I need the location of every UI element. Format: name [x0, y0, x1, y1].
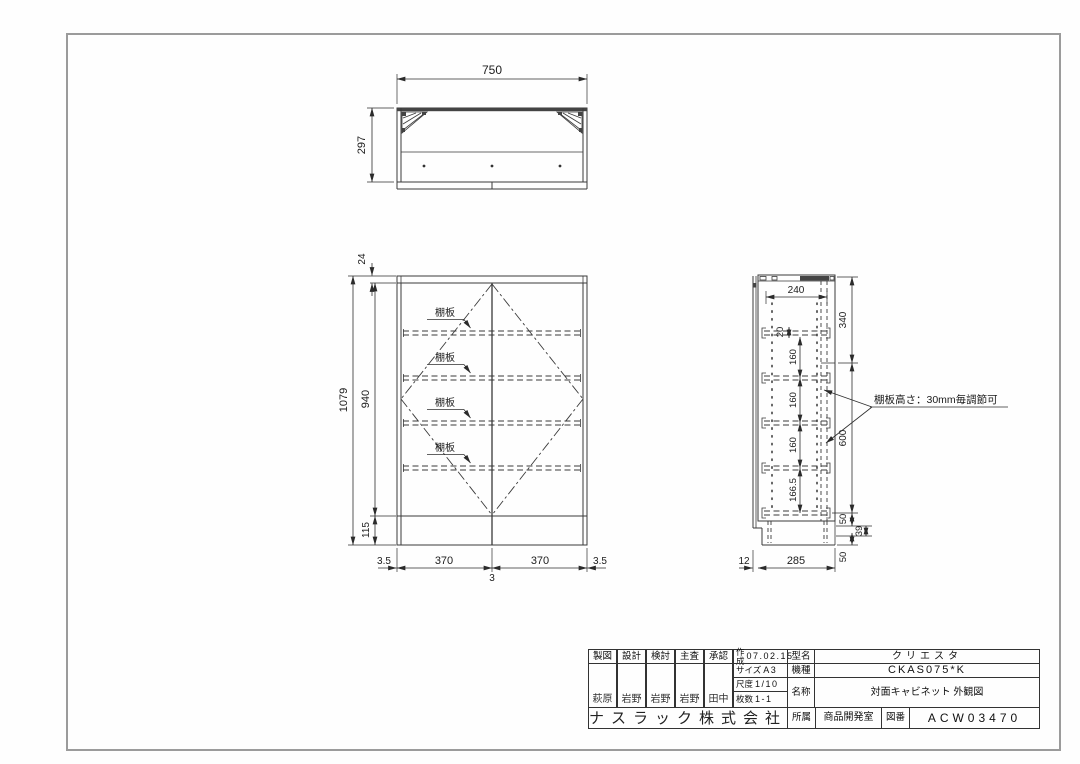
- sheets-label: 枚数: [736, 695, 753, 704]
- dwg-label-cell: 図番: [881, 707, 910, 729]
- size-value: A3: [763, 666, 777, 675]
- name-value: 対面キャビネット 外観図: [871, 688, 984, 698]
- dim-front-cap: 24: [357, 253, 368, 265]
- sheets-cell: 枚数 1-1: [733, 691, 788, 708]
- role-chief: 主査: [675, 649, 704, 664]
- model-label: 型名: [791, 652, 810, 662]
- dim-side-p2: 160: [788, 392, 799, 408]
- company-cell: ナスラック株式会社: [588, 707, 788, 729]
- type-label-cell: 機種: [787, 663, 815, 678]
- role-approval: 承認: [704, 649, 733, 664]
- type-value-cell: CKAS075*K: [814, 663, 1040, 678]
- size-label: サイズ: [736, 666, 761, 675]
- dim-front-door-r: 370: [531, 555, 549, 567]
- size-cell: サイズ A3: [733, 663, 788, 678]
- dim-side-mid: 600: [838, 429, 849, 446]
- dwg-value: ACW03470: [928, 712, 1021, 724]
- scale-value: 1/10: [755, 680, 779, 689]
- stamp-cell: 岩野: [675, 663, 704, 708]
- model-value-cell: クリエスタ: [814, 649, 1040, 664]
- dept-label-cell: 所属: [787, 707, 816, 729]
- model-value: クリエスタ: [892, 652, 962, 662]
- model-label-cell: 型名: [787, 649, 815, 664]
- shelf-label: 棚板: [435, 351, 455, 364]
- dim-front-door-l: 370: [435, 555, 453, 567]
- dim-side-p3: 160: [788, 437, 799, 453]
- dim-side-upper: 340: [838, 311, 849, 328]
- dim-side-b3: 50: [838, 552, 849, 563]
- name-label-cell: 名称: [787, 677, 815, 708]
- dim-side-p4: 166.5: [788, 478, 799, 502]
- side-view-outline: [753, 275, 835, 545]
- dim-side-pin: 20: [775, 327, 786, 338]
- role-label: 検討: [651, 652, 670, 662]
- shelf-label: 棚板: [435, 306, 455, 319]
- shelf-note-text: 棚板高さ：30mm毎調節可: [874, 393, 998, 406]
- stamp-cell: 岩野: [646, 663, 675, 708]
- scale-label: 尺度: [736, 680, 753, 689]
- top-view-outline: [397, 108, 587, 189]
- role-label: 主査: [680, 652, 699, 662]
- dim-front-edge-l: 3.5: [377, 556, 391, 567]
- stamp-name: 岩野: [651, 695, 671, 705]
- top-view-dimensions: 750 297: [356, 63, 587, 182]
- name-label: 名称: [791, 688, 810, 698]
- dim-side-b2: 39: [854, 526, 865, 537]
- dept-value-cell: 商品開発室: [815, 707, 882, 729]
- role-label: 製図: [593, 652, 612, 662]
- stamp-name: 岩野: [622, 695, 642, 705]
- shelf-label: 棚板: [435, 441, 455, 454]
- dim-front-inner: 940: [360, 390, 372, 408]
- name-value-cell: 対面キャビネット 外観図: [814, 677, 1040, 708]
- dim-front-edge-r: 3.5: [593, 556, 607, 567]
- role-design: 設計: [617, 649, 646, 664]
- dwg-label: 図番: [886, 713, 905, 723]
- dim-front-total: 1079: [338, 388, 350, 412]
- dept-label: 所属: [792, 713, 811, 723]
- shelf-label: 棚板: [435, 396, 455, 409]
- role-label: 承認: [709, 652, 728, 662]
- front-view-outline: [397, 276, 587, 545]
- dim-front-base: 115: [361, 522, 372, 538]
- stamp-cell: 萩原: [588, 663, 617, 708]
- dim-side-inner-w: 240: [788, 285, 805, 296]
- type-label: 機種: [791, 666, 810, 676]
- type-value: CKAS075*K: [888, 665, 966, 676]
- front-view-shelf-callouts: 棚板 棚板 棚板 棚板: [427, 306, 471, 463]
- scale-cell: 尺度 1/10: [733, 677, 788, 692]
- stamp-name: 萩原: [593, 695, 613, 705]
- role-drafting: 製図: [588, 649, 617, 664]
- dim-top-width: 750: [482, 63, 502, 77]
- role-label: 設計: [622, 652, 641, 662]
- sheets-value: 1-1: [755, 695, 773, 704]
- dept-value: 商品開発室: [824, 713, 874, 723]
- dwg-value-cell: ACW03470: [909, 707, 1040, 729]
- dim-front-gap: 3: [489, 573, 495, 584]
- stamp-cell: 岩野: [617, 663, 646, 708]
- dim-top-depth: 297: [356, 136, 368, 154]
- stamp-cell: 田中: [704, 663, 733, 708]
- stamp-name: 岩野: [680, 695, 700, 705]
- dim-side-b1: 50: [838, 514, 849, 525]
- front-view-dimensions: 24 1079 940 115 3.5 370 370 3.5: [338, 253, 607, 584]
- dim-side-p1: 160: [788, 349, 799, 365]
- company-name: ナスラック株式会社: [589, 711, 787, 726]
- dim-side-front-t: 12: [738, 556, 750, 567]
- created-cell: 作成 07.02.15: [733, 649, 788, 664]
- stamp-name: 田中: [709, 695, 729, 705]
- dim-side-depth: 285: [787, 555, 805, 567]
- role-review: 検討: [646, 649, 675, 664]
- drawing-sheet: 750 297: [0, 0, 1080, 764]
